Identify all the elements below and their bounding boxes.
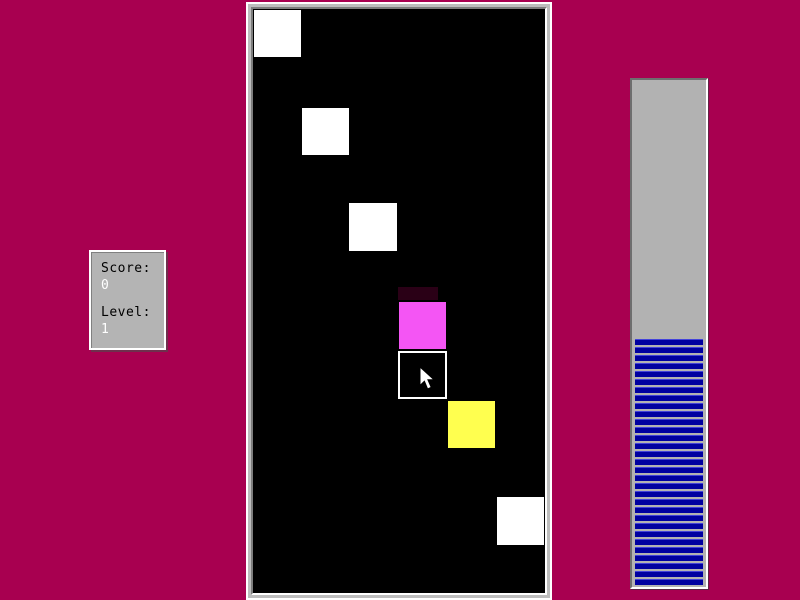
score-value: 0 xyxy=(101,277,164,294)
selection-cursor-cell[interactable] xyxy=(398,351,447,399)
level-progress-bar xyxy=(630,78,708,589)
score-label: Score: xyxy=(101,260,164,277)
game-window: Score: 0 Level: 1 xyxy=(0,0,800,600)
playfield-frame xyxy=(246,2,552,600)
tile-magenta[interactable] xyxy=(399,302,446,349)
playfield-bevel xyxy=(251,7,547,595)
tile-white-3[interactable] xyxy=(349,203,397,251)
level-value: 1 xyxy=(101,321,164,338)
tile-white-4[interactable] xyxy=(497,497,544,545)
tile-yellow[interactable] xyxy=(448,401,495,448)
falling-trail xyxy=(398,287,438,300)
tile-white-1[interactable] xyxy=(254,10,301,57)
level-label: Level: xyxy=(101,304,164,321)
game-board[interactable] xyxy=(253,9,545,593)
tile-white-2[interactable] xyxy=(302,108,349,155)
score-panel: Score: 0 Level: 1 xyxy=(89,250,166,350)
progress-fill xyxy=(635,337,703,585)
